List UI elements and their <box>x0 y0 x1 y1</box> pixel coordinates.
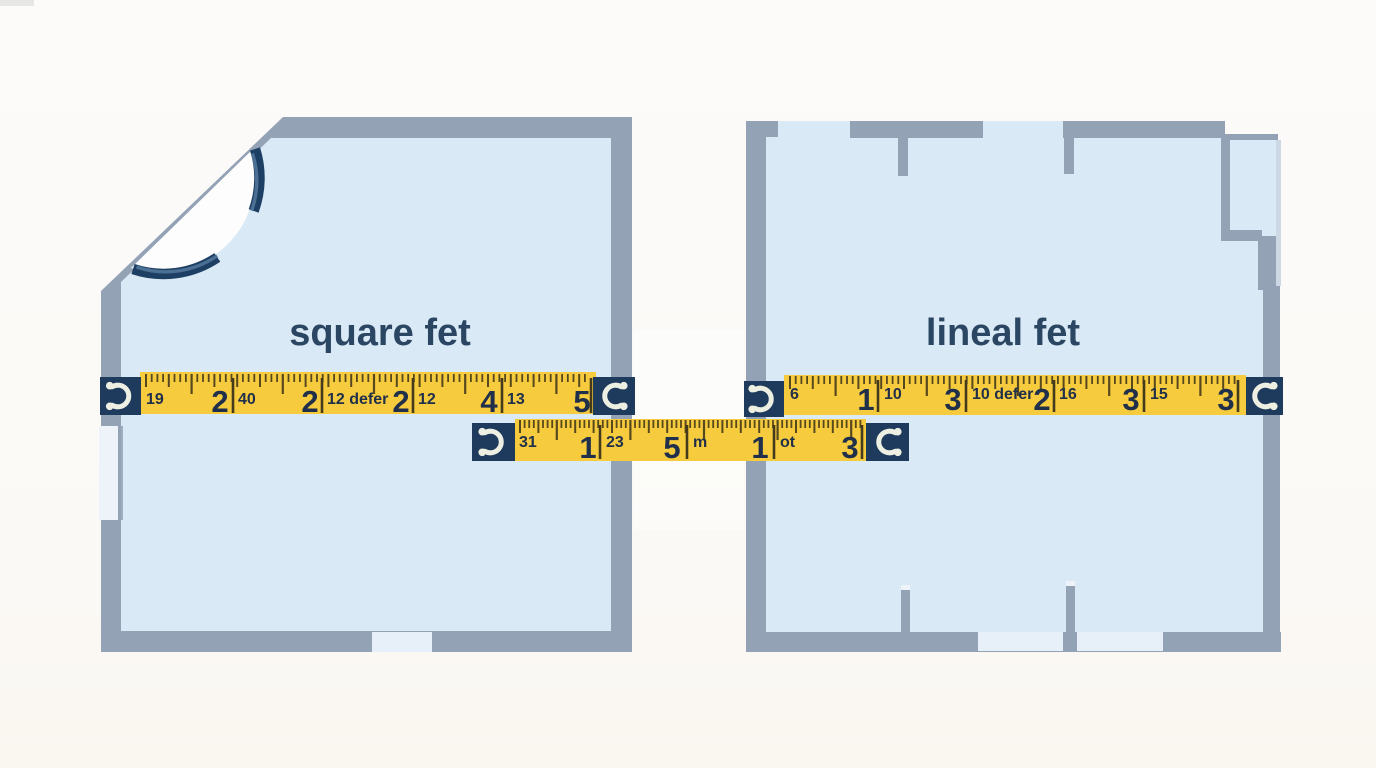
svg-text:lineal fet: lineal fet <box>926 312 1080 354</box>
svg-text:square fet: square fet <box>289 312 471 354</box>
svg-text:1: 1 <box>857 382 874 417</box>
svg-text:ot: ot <box>780 434 796 451</box>
svg-text:3: 3 <box>1217 382 1234 417</box>
svg-text:15: 15 <box>1150 386 1168 403</box>
svg-text:40: 40 <box>238 391 256 408</box>
svg-text:5: 5 <box>573 384 590 419</box>
svg-text:6: 6 <box>790 386 799 403</box>
svg-text:31: 31 <box>519 434 537 451</box>
svg-text:13: 13 <box>507 391 525 408</box>
svg-text:5: 5 <box>663 430 680 465</box>
svg-text:3: 3 <box>1122 382 1139 417</box>
svg-text:2: 2 <box>301 384 318 419</box>
svg-text:23: 23 <box>606 434 624 451</box>
svg-text:19: 19 <box>146 391 164 408</box>
svg-text:2: 2 <box>211 384 228 419</box>
svg-text:16: 16 <box>1059 386 1077 403</box>
svg-text:1: 1 <box>751 430 768 465</box>
svg-text:m: m <box>693 434 707 451</box>
svg-text:2: 2 <box>1033 382 1050 417</box>
svg-text:2: 2 <box>392 384 409 419</box>
svg-text:1: 1 <box>579 430 596 465</box>
svg-text:10 defer: 10 defer <box>972 386 1033 403</box>
svg-text:4: 4 <box>480 384 498 419</box>
svg-text:12 defer: 12 defer <box>327 391 388 408</box>
svg-text:10: 10 <box>884 386 902 403</box>
svg-text:3: 3 <box>944 382 961 417</box>
svg-text:12: 12 <box>418 391 436 408</box>
svg-text:3: 3 <box>841 430 858 465</box>
